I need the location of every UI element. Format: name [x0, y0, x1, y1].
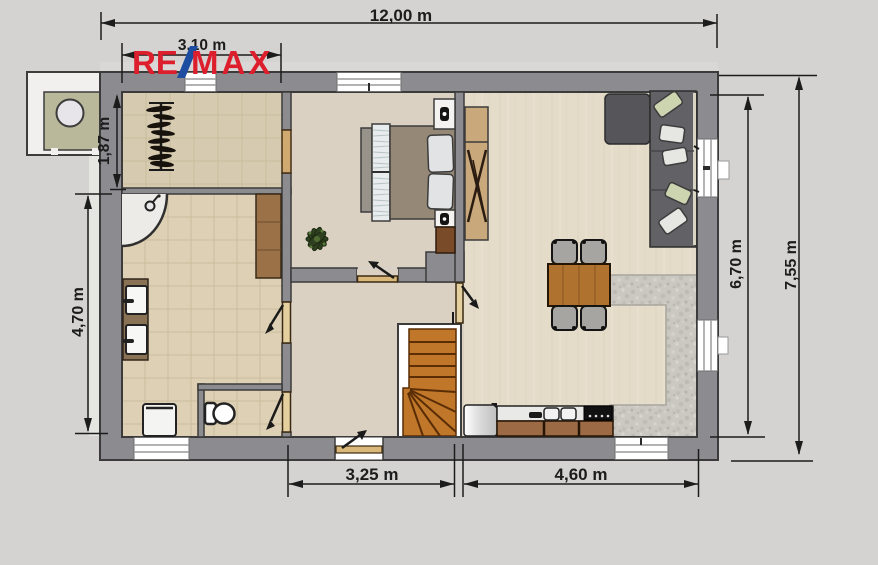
svg-text:1,87 m: 1,87 m [96, 117, 113, 165]
svg-text:4,70 m: 4,70 m [70, 287, 87, 337]
svg-text:6,70 m: 6,70 m [728, 239, 745, 289]
svg-text:MAX: MAX [191, 44, 273, 81]
svg-text:4,60 m: 4,60 m [555, 465, 608, 484]
svg-text:12,00 m: 12,00 m [370, 6, 432, 25]
svg-text:7,55 m: 7,55 m [783, 240, 800, 290]
svg-text:3,25 m: 3,25 m [346, 465, 399, 484]
svg-text:RE: RE [132, 44, 178, 81]
